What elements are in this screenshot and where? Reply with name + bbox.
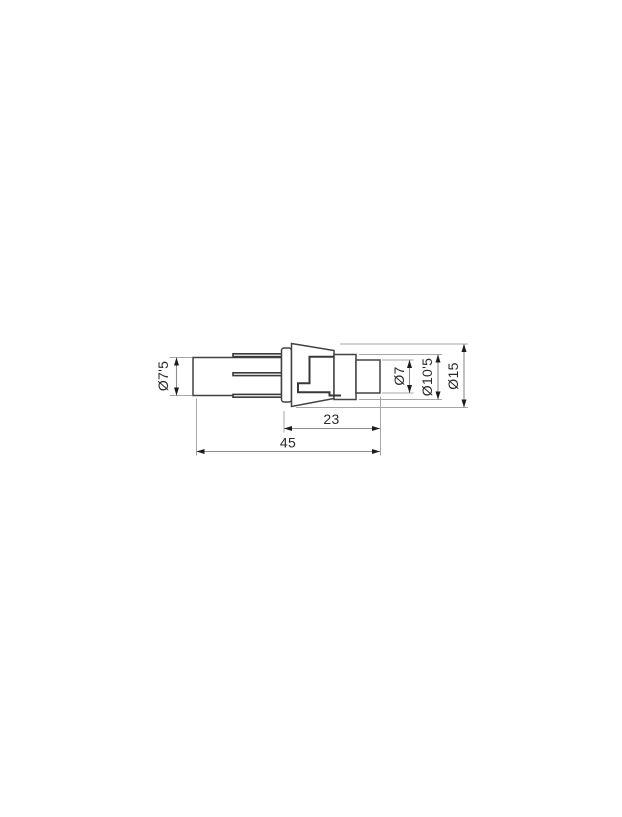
prong-top — [233, 354, 289, 357]
arrowhead-up — [462, 344, 467, 352]
part-view — [193, 344, 380, 407]
arrowhead-down — [436, 392, 441, 400]
dimension-label-sleeve-diameter: Ø10'5 — [419, 358, 435, 396]
rim-flange — [282, 348, 292, 402]
technical-drawing: Ø7'5 Ø7 Ø10'5 Ø15 — [0, 0, 622, 817]
arrowhead-down — [462, 400, 467, 408]
arrowhead-up — [436, 355, 441, 363]
dimension-tip-diameter: Ø7 — [382, 360, 414, 393]
tip — [356, 360, 380, 393]
dimension-label-front-length: 23 — [323, 411, 339, 427]
dimension-label-tip-diameter: Ø7 — [391, 366, 407, 385]
arrowhead-right — [372, 426, 380, 431]
dimension-label-flange-diameter: Ø15 — [445, 362, 461, 389]
arrowhead-left — [284, 426, 292, 431]
arrowhead-right — [372, 449, 380, 454]
prong-bottom — [233, 394, 289, 397]
cone-body — [292, 344, 335, 407]
drawing-canvas: Ø7'5 Ø7 Ø10'5 Ø15 — [0, 0, 622, 817]
arrowhead-up — [174, 358, 179, 366]
sleeve — [334, 355, 356, 400]
dimension-barrel-diameter: Ø7'5 — [155, 358, 192, 396]
arrowhead-up — [407, 360, 412, 368]
prong-middle — [233, 373, 289, 376]
arrowhead-down — [174, 388, 179, 396]
arrowhead-left — [197, 449, 205, 454]
arrowhead-down — [407, 385, 412, 393]
dimension-label-barrel-diameter: Ø7'5 — [155, 361, 171, 391]
dimension-label-overall-length: 45 — [280, 435, 296, 451]
barrel-outline — [193, 358, 282, 396]
